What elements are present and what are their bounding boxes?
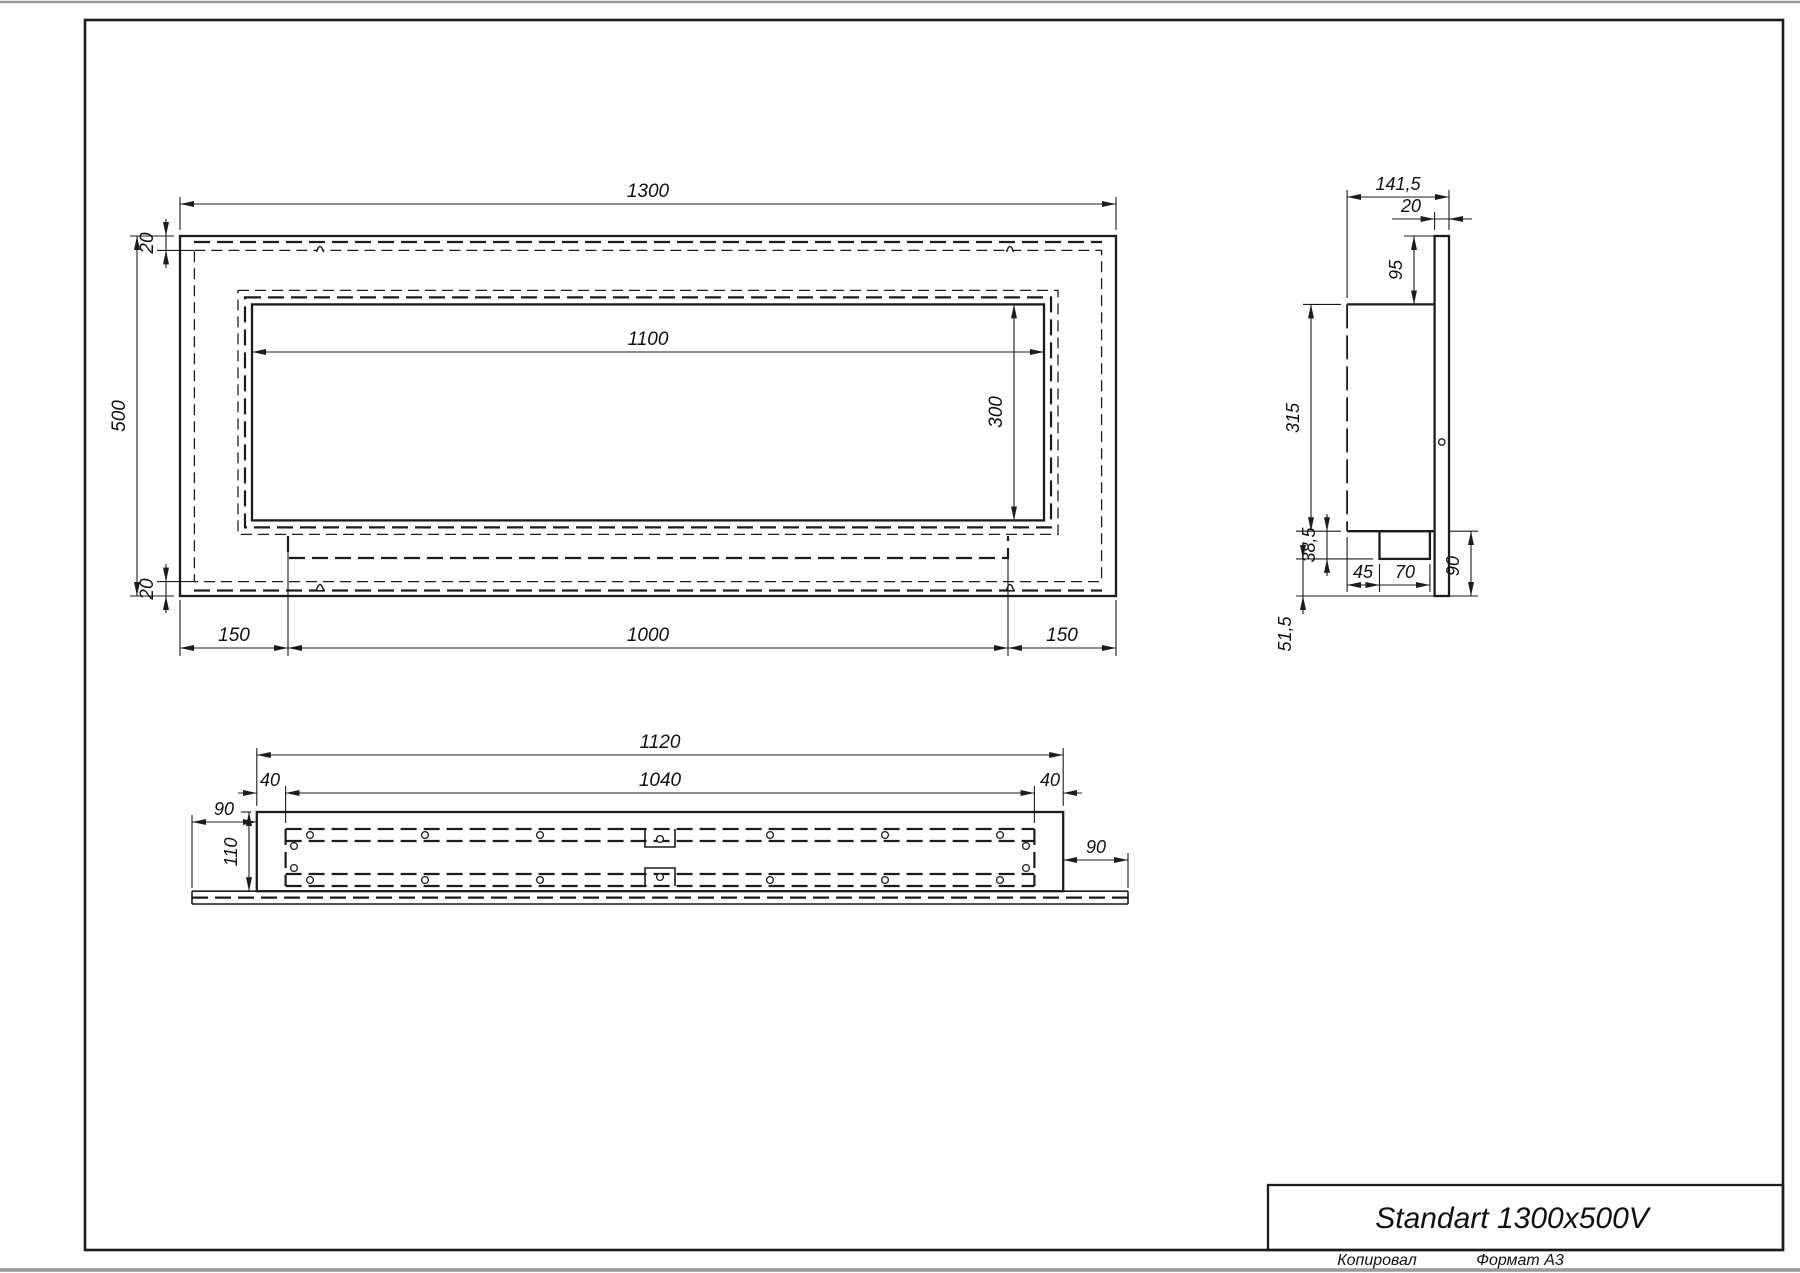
dim-label: 110 (221, 838, 241, 867)
format-label: Формат А3 (1476, 1252, 1564, 1269)
dim-front-width: 1300 (180, 181, 1116, 230)
dim-label: 1100 (628, 329, 669, 350)
dim-label: 300 (986, 396, 1007, 428)
side-view: 141,5 20 95 315 38,5 (1275, 174, 1478, 652)
dim-front-top-inset: 20 (137, 219, 194, 268)
dim-label: 1120 (640, 732, 681, 753)
keyhole-slot-icon (317, 247, 324, 253)
dim-side-top-offset: 95 (1386, 236, 1435, 304)
dim-label: 90 (1086, 837, 1106, 857)
dim-label: 70 (1395, 562, 1415, 582)
dim-label: 45 (1353, 562, 1374, 582)
technical-drawing: 1300 500 20 20 1100 (0, 0, 1800, 1273)
dim-front-bottom-inset: 20 (137, 564, 194, 613)
dim-label: 141,5 (1375, 174, 1421, 194)
dim-label: 1000 (627, 625, 670, 646)
screw-hole (657, 874, 664, 881)
dim-label: 90 (1443, 556, 1463, 576)
dim-top-depth: 110 (221, 812, 251, 891)
screw-hole (657, 836, 664, 843)
side-front-plate (1435, 236, 1449, 596)
dim-label: 40 (260, 770, 280, 790)
dim-front-bottom-row: 150 1000 150 (180, 552, 1116, 656)
side-burner-tray (1380, 531, 1430, 559)
dim-label: 38,5 (1299, 527, 1319, 563)
dim-label: 150 (218, 625, 250, 646)
front-burner-tray-hidden (288, 536, 1008, 558)
dim-front-height: 500 (109, 236, 174, 596)
dim-side-panel-thickness: 20 (1392, 196, 1472, 230)
front-back-plate-hidden (194, 250, 1101, 581)
title-block: Standart 1300x500V (1268, 1185, 1783, 1250)
dim-label: 51,5 (1275, 616, 1295, 652)
dim-label: 500 (109, 400, 130, 432)
dim-side-body-height: 315 (1283, 304, 1341, 531)
dim-opening-height: 300 (986, 304, 1014, 520)
dim-label: 20 (137, 232, 158, 255)
dim-label: 20 (137, 578, 158, 601)
top-view: 1120 1040 40 40 90 90 110 (192, 732, 1128, 904)
dim-top-overhang-right: 90 (1063, 837, 1128, 888)
dim-label: 315 (1283, 402, 1303, 433)
keyhole-slot-icon (1007, 247, 1014, 253)
dim-label: 150 (1046, 625, 1078, 646)
dim-label: 90 (214, 799, 234, 819)
dim-side-tray-position: 45 70 (1347, 537, 1430, 592)
dim-label: 1300 (627, 181, 670, 202)
dim-label: 95 (1386, 259, 1406, 280)
dim-opening-width: 1100 (252, 329, 1044, 352)
keyhole-slot-icon (317, 585, 324, 591)
dim-label: 1040 (639, 770, 682, 791)
dim-top-inner-width: 1040 40 40 (238, 770, 1082, 823)
drawing-title: Standart 1300x500V (1375, 1202, 1652, 1235)
dim-label: 40 (1040, 770, 1060, 790)
dim-top-outer-width: 1120 (257, 732, 1063, 806)
dim-label: 20 (1400, 196, 1421, 216)
front-opening-flange-hidden-outer (238, 290, 1058, 534)
drawing-sheet: 1300 500 20 20 1100 (0, 0, 1800, 1273)
copied-label: Копировал (1337, 1252, 1417, 1269)
screw-hole (1439, 439, 1445, 445)
front-view: 1300 500 20 20 1100 (109, 181, 1116, 656)
